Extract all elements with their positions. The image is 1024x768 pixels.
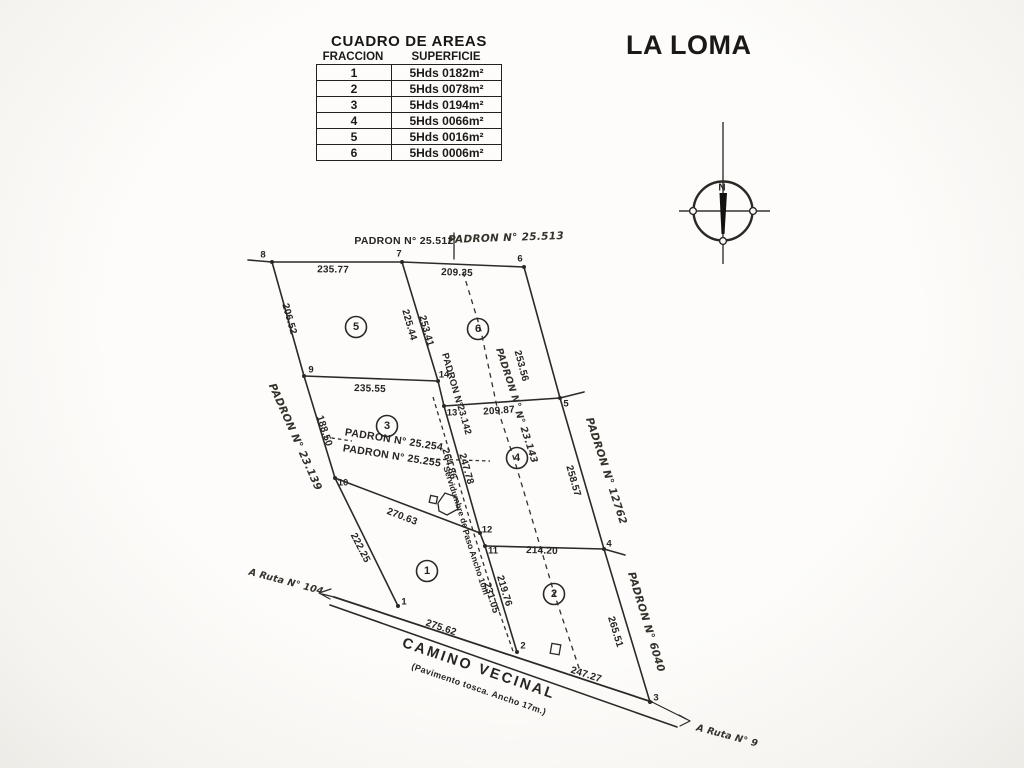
measurement-seg-7-6: 209.35 bbox=[441, 267, 473, 279]
vertex-labels: 8 7 6 9 14 13 5 10 12 11 4 1 2 3 bbox=[260, 249, 658, 704]
road-south-edge bbox=[330, 605, 677, 727]
vertex-label-11: 11 bbox=[488, 546, 499, 557]
measurement-seg-10-12: 270.63 bbox=[385, 506, 419, 528]
measurement-seg-10-1: 222.25 bbox=[348, 531, 372, 565]
vertex-label-6: 6 bbox=[517, 254, 522, 265]
fraction-marker-5: 5 bbox=[346, 317, 367, 338]
vertex-label-4: 4 bbox=[606, 539, 612, 550]
fraction-marker-1: 1 bbox=[417, 561, 438, 582]
tick-at-4 bbox=[604, 549, 625, 555]
vertex-dot bbox=[515, 650, 519, 654]
fraction-number-3: 3 bbox=[384, 420, 390, 432]
building-symbol-parcel-2 bbox=[550, 643, 561, 654]
compass-rose: N bbox=[679, 122, 770, 264]
vertex-dot bbox=[648, 700, 652, 704]
vertex-label-1: 1 bbox=[401, 597, 407, 608]
fraction-number-4: 4 bbox=[514, 452, 521, 464]
line-9-14 bbox=[304, 376, 438, 381]
vertex-dot bbox=[302, 374, 306, 378]
vertex-label-3: 3 bbox=[653, 693, 658, 704]
fraction-number-1: 1 bbox=[424, 565, 430, 577]
measurement-seg-11-4: 214.20 bbox=[526, 545, 558, 557]
fraction-number-6: 6 bbox=[475, 323, 481, 335]
scanned-survey-plan-page: CUADRO DE AREAS FRACCION SUPERFICIE 1 5H… bbox=[0, 0, 1024, 768]
measurement-road-1-2: 275.62 bbox=[424, 618, 458, 639]
measurement-seg-13-5: 209.87 bbox=[483, 404, 516, 417]
to-route-104-label: A Ruta N° 104 bbox=[246, 566, 324, 597]
compass-south-bead bbox=[720, 238, 727, 245]
outer-top-boundary bbox=[248, 260, 524, 267]
tick-at-5 bbox=[560, 392, 584, 398]
vertex-dot bbox=[558, 396, 562, 400]
vertex-dot bbox=[333, 476, 337, 480]
easement-edge-dashed-line bbox=[433, 397, 514, 654]
to-route-9-label: A Ruta N° 9 bbox=[694, 722, 759, 749]
vertex-dots bbox=[270, 260, 652, 704]
vertex-label-10: 10 bbox=[338, 478, 349, 489]
measurement-seg-7-14: 253.41 bbox=[416, 314, 435, 348]
padron-center-west-2: 23.142 bbox=[455, 404, 474, 436]
measurement-seg-9-14: 235.55 bbox=[354, 383, 386, 395]
outer-east-boundary bbox=[524, 267, 650, 702]
measurement-seg-4-3: 265.51 bbox=[605, 615, 625, 649]
padron-top-west: PADRON N° 25.512 bbox=[354, 235, 453, 247]
measurement-seg-5-4: 258.57 bbox=[563, 464, 582, 498]
measurement-seg-8-9: 206.52 bbox=[279, 302, 298, 336]
line-14-13 bbox=[438, 381, 444, 406]
compass-needle-icon bbox=[720, 193, 728, 234]
vertex-dot bbox=[483, 544, 487, 548]
measurement-seg-9-10: 188.50 bbox=[314, 414, 334, 448]
shed-symbol-small bbox=[429, 495, 437, 503]
vertex-label-12: 12 bbox=[482, 525, 493, 536]
vertex-label-5: 5 bbox=[563, 399, 569, 410]
vertex-dot bbox=[442, 404, 446, 408]
padron-east: PADRON N° 12762 bbox=[583, 416, 629, 526]
padron-west: PADRON N° 23.139 bbox=[266, 382, 324, 493]
measurement-seg-8-7: 235.77 bbox=[317, 264, 349, 276]
fraction-number-2: 2 bbox=[551, 588, 557, 600]
vertex-label-9: 9 bbox=[308, 365, 313, 376]
measurement-road-2-3: 247.27 bbox=[569, 665, 603, 685]
vertex-dot bbox=[270, 260, 274, 264]
fraction-marker-2: 2 bbox=[544, 584, 565, 605]
vertex-label-7: 7 bbox=[396, 249, 401, 260]
vertex-label-8: 8 bbox=[260, 250, 265, 261]
measurement-seg-13-12: 247.78 bbox=[456, 452, 475, 486]
padron-southeast: PADRON N° 6040 bbox=[625, 570, 667, 673]
vertex-dot bbox=[522, 265, 526, 269]
survey-drawing: 8 7 6 9 14 13 5 10 12 11 4 1 2 3 5 6 bbox=[0, 0, 1024, 768]
easement-label-line2: Paso Ancho 10m bbox=[461, 528, 492, 596]
vertex-dot bbox=[396, 604, 400, 608]
compass-east-bead bbox=[750, 208, 757, 215]
compass-west-bead bbox=[690, 208, 697, 215]
fraction-marker-4: 4 bbox=[507, 448, 528, 469]
padron-top-east: PADRON N° 25.513 bbox=[448, 230, 564, 246]
vertex-label-2: 2 bbox=[520, 641, 525, 652]
fraction-number-5: 5 bbox=[353, 321, 359, 333]
compass-north-label: N bbox=[718, 183, 725, 194]
vertex-dot bbox=[400, 260, 404, 264]
measurement-seg-7-14-west: 225.44 bbox=[399, 308, 418, 342]
